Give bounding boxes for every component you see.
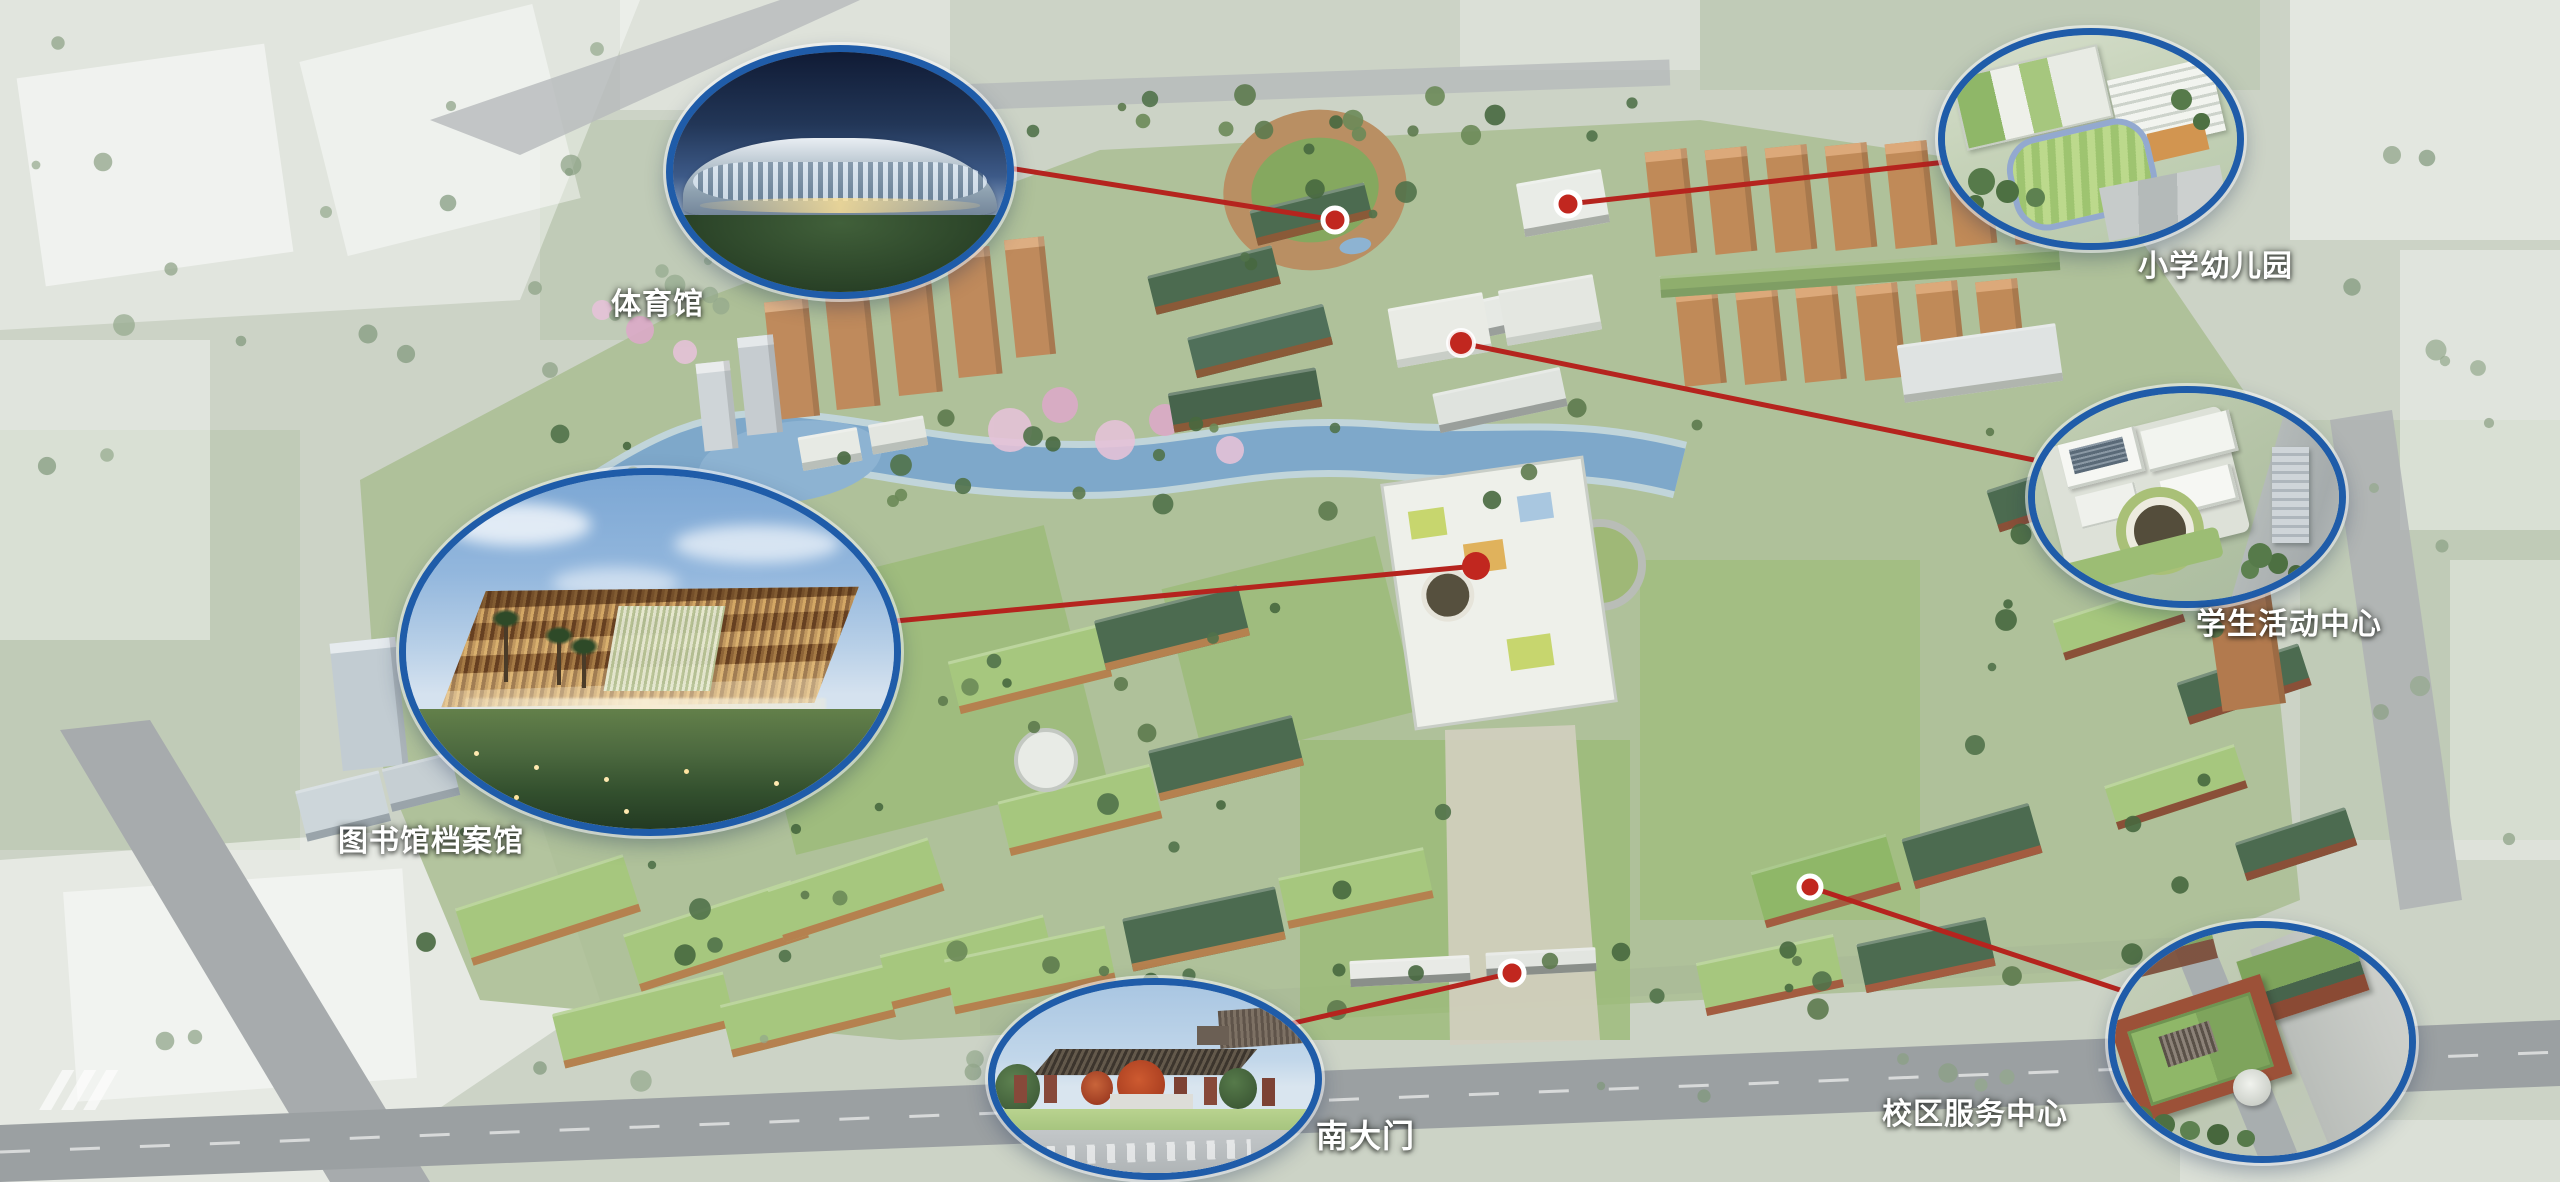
marker-service-center[interactable] (1799, 876, 1821, 898)
school-trees (1968, 168, 1994, 195)
gymnasium-photo (673, 52, 1007, 292)
location-markers (1323, 192, 1821, 985)
service-center-photo (2115, 928, 2409, 1156)
label-library-archives: 图书馆档案馆 (338, 816, 524, 860)
gate-background-building (1218, 1005, 1304, 1048)
gate-background-building-2 (1197, 1026, 1229, 1045)
label-campus-service-center: 校区服务中心 (1882, 1089, 2068, 1133)
service-dome (2233, 1069, 2271, 1105)
palm-tree (504, 624, 508, 682)
palm-tree (557, 641, 561, 685)
cloud (445, 503, 591, 545)
callout-student-activity-center[interactable] (2028, 386, 2346, 608)
callout-library-archives[interactable] (399, 468, 901, 836)
connector-gymnasium (990, 165, 1335, 220)
palm-tree (582, 652, 586, 688)
connector-activity-center (1461, 343, 2034, 460)
marker-south-gate[interactable] (1500, 961, 1524, 985)
connector-service-center (1810, 887, 2120, 990)
label-student-activity-center: 学生活动中心 (2196, 599, 2382, 643)
connector-lines (885, 162, 2120, 1025)
activity-trees (2248, 543, 2272, 568)
marker-gymnasium[interactable] (1323, 208, 1347, 232)
primary-school-photo (1945, 35, 2237, 243)
label-south-gate: 南大门 (1316, 1111, 1415, 1157)
callout-south-gate[interactable] (988, 978, 1322, 1180)
label-gymnasium: 体育馆 (611, 279, 704, 323)
south-gate-photo (995, 985, 1315, 1173)
activity-center-photo (2035, 393, 2339, 601)
activity-tower (2272, 447, 2308, 543)
gym-glass-facade (693, 162, 987, 200)
callout-gymnasium[interactable] (666, 45, 1014, 299)
callout-primary-school-kindergarten[interactable] (1938, 28, 2244, 250)
library-atrium-glass (603, 606, 725, 691)
callout-campus-service-center[interactable] (2108, 921, 2416, 1163)
gym-lawn (666, 215, 1014, 297)
marker-activity-center[interactable] (1448, 330, 1474, 356)
marker-primary-school[interactable] (1556, 192, 1580, 216)
marker-library[interactable] (1462, 552, 1490, 580)
service-trees (2127, 1106, 2153, 1131)
connector-primary-school (1568, 162, 1946, 204)
label-primary-school-kindergarten: 小学幼儿园 (2138, 241, 2293, 285)
library-photo (406, 475, 894, 829)
connector-library (885, 566, 1476, 622)
gate-brick-pillars (1014, 1075, 1027, 1103)
gym-base-lights (700, 198, 981, 212)
connector-south-gate (1285, 973, 1512, 1025)
campus-aerial-rendering: 体育馆 小学幼儿园 学生活动中心 图书馆档案馆 南大门 校区服务中心 (0, 0, 2560, 1182)
